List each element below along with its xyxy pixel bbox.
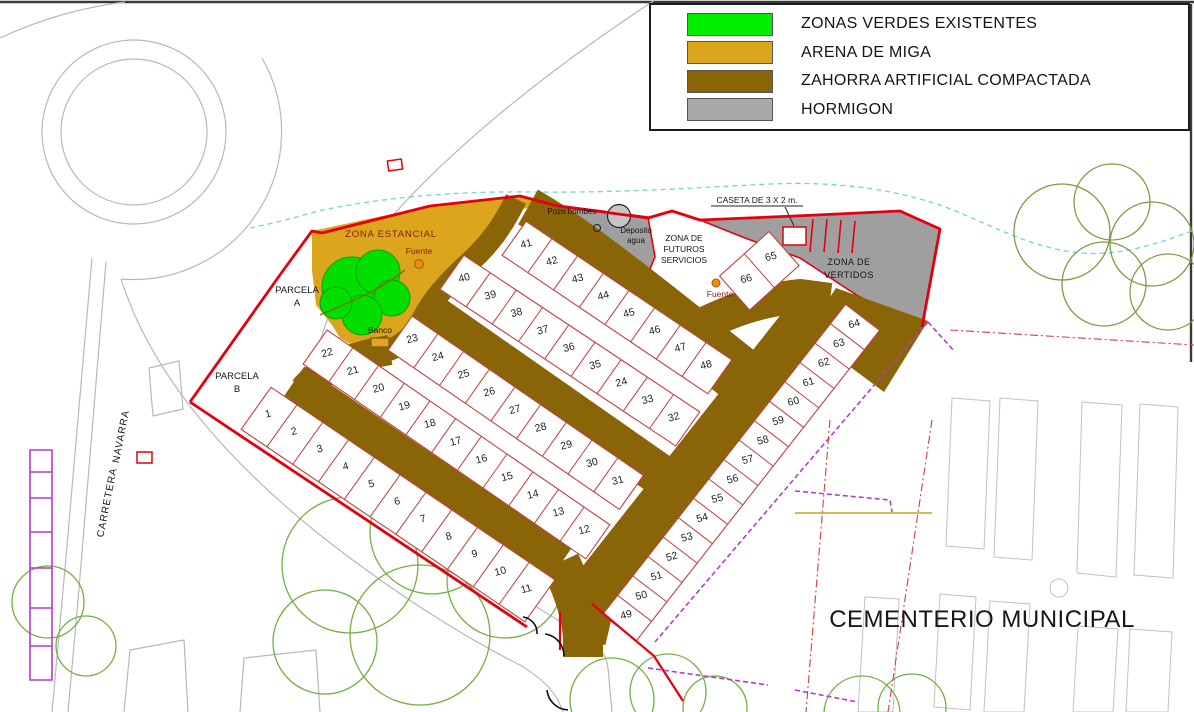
cemetery-line-north: [950, 330, 1194, 345]
tree-icon: [12, 566, 84, 638]
cemetery-line-west-2: [806, 420, 830, 712]
parcela-a-label: A: [294, 298, 301, 309]
burial-block: [1073, 626, 1118, 712]
zona-futuros-label: ZONA DE: [665, 233, 703, 243]
zona-vertidos-label: ZONA DE: [827, 257, 870, 267]
legend-label: ARENA DE MIGA: [801, 44, 931, 62]
legend-swatch: [687, 98, 773, 121]
caseta-icon: [783, 227, 806, 245]
fuente-icon: [712, 279, 720, 287]
banco-icon: [371, 338, 389, 347]
trees-northeast: [1014, 164, 1194, 330]
legend-swatch: [687, 41, 773, 64]
building-outline: [124, 640, 188, 712]
tree-icon: [350, 565, 490, 705]
carretera-navarra-label: CARRETERA: [95, 467, 119, 538]
road-entrance-stem: [560, 562, 583, 657]
small-structure: [387, 159, 402, 171]
entrance-gates: [523, 617, 568, 710]
fuente-label: Fuente: [707, 289, 734, 299]
legend-label: ZAHORRA ARTIFICIAL COMPACTADA: [801, 72, 1091, 90]
banco-label: Banco: [368, 325, 392, 335]
tree-icon: [1014, 184, 1110, 280]
roundabout-ring-road: [121, 58, 282, 280]
parcela-b-label: PARCELA: [215, 371, 259, 382]
west-building: [30, 450, 52, 680]
cemetery-blocks: [858, 398, 1178, 712]
roundabout-inner: [61, 59, 207, 205]
tree-icon: [56, 616, 116, 676]
small-plot-outline: [149, 361, 183, 416]
legend-label: HORMIGON: [801, 101, 893, 119]
legend-swatch: [687, 13, 773, 36]
caseta-label: CASETA DE 3 X 2 m.: [716, 195, 797, 205]
site-plan: ZONA ESTANCIAL Fuente Banco PARCELA A PA…: [0, 0, 1194, 712]
small-structure: [137, 452, 152, 463]
tree-icon: [1074, 164, 1150, 240]
boundary-purple-corner: [928, 322, 955, 352]
gate-swing-icon: [545, 634, 564, 656]
cemetery-circle: [1050, 579, 1068, 597]
deposito-agua-label: agua: [627, 236, 645, 245]
burial-block: [1126, 629, 1172, 712]
legend-label: ZONAS VERDES EXISTENTES: [801, 15, 1037, 33]
carretera-edge-2: [68, 262, 106, 712]
legend: ZONAS VERDES EXISTENTESARENA DE MIGAZAHO…: [649, 3, 1190, 131]
zona-vertidos-label: VERTIDOS: [824, 270, 874, 280]
deposito-agua-label: Deposito: [620, 226, 652, 235]
legend-item: ARENA DE MIGA: [687, 41, 1188, 64]
burial-block: [994, 398, 1038, 560]
zona-futuros-label: FUTUROS: [663, 244, 704, 254]
parcela-a-label: PARCELA: [275, 285, 319, 296]
legend-item: ZONAS VERDES EXISTENTES: [687, 13, 1188, 36]
tree-icon: [1130, 254, 1194, 330]
parcela-b-label: B: [234, 384, 240, 395]
boundary-purple-mid: [795, 491, 892, 512]
cementerio-municipal-label: CEMENTERIO MUNICIPAL: [829, 606, 1135, 633]
legend-item: HORMIGON: [687, 98, 1188, 121]
building-ticks: [30, 472, 52, 646]
burial-block: [1077, 402, 1122, 577]
building-outline: [240, 650, 320, 712]
roundabout-outer: [42, 40, 226, 224]
road-corner-arc: [0, 2, 125, 38]
burial-block: [946, 398, 990, 549]
tree-icon: [273, 590, 377, 694]
carretera-navarra-label: NAVARRA: [111, 409, 132, 464]
legend-item: ZAHORRA ARTIFICIAL COMPACTADA: [687, 70, 1188, 93]
carretera-edge-1: [52, 258, 92, 712]
legend-swatch: [687, 70, 773, 93]
pozo-bombeo-label: Pozo bombeo: [547, 207, 597, 216]
cemetery-line-west-1: [888, 420, 932, 712]
zona-futuros-label: SERVICIOS: [661, 255, 707, 265]
burial-block: [1134, 404, 1178, 578]
tree-icon: [1110, 202, 1194, 286]
tree-icon: [570, 658, 654, 712]
fuente-label: Fuente: [406, 246, 433, 256]
zona-estancial-label: ZONA ESTANCIAL: [345, 229, 437, 240]
fuente-icon: [415, 260, 424, 269]
